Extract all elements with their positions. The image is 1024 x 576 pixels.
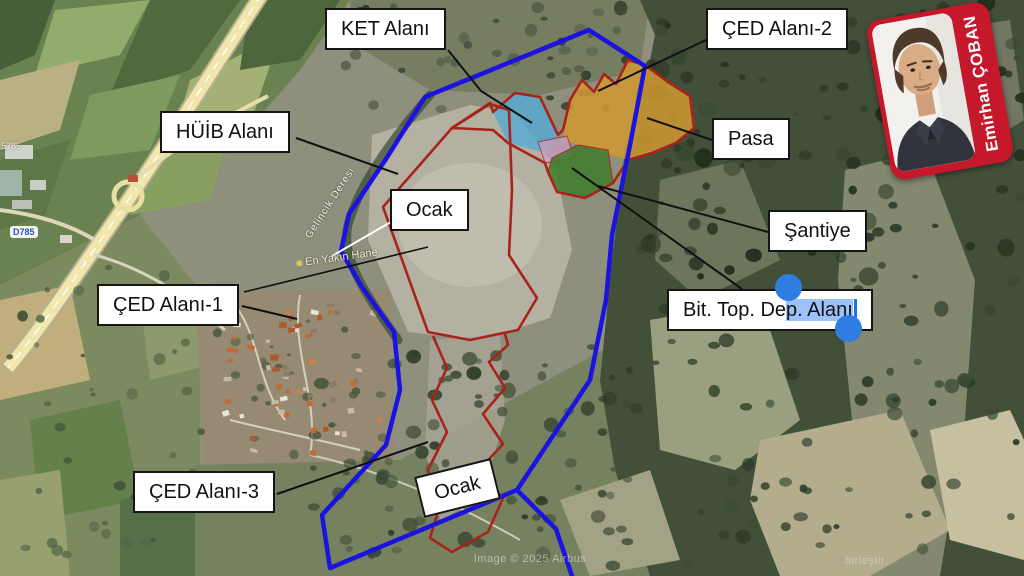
label-ced-alani-2[interactable]: ÇED Alanı-2	[706, 8, 848, 50]
label-ocak-upper[interactable]: Ocak	[390, 189, 469, 231]
road-shield-d785: D785	[10, 226, 38, 238]
road-label-5785: 5785	[1, 141, 21, 151]
label-ced-alani-1[interactable]: ÇED Alanı-1	[97, 284, 239, 326]
label-pasa[interactable]: Pasa	[712, 118, 790, 160]
label-huib-alani[interactable]: HÜİB Alanı	[160, 111, 290, 153]
satellite-map-canvas: Gelincik Deresi En Yakın Hane D785 5785 …	[0, 0, 1024, 576]
label-santiye[interactable]: Şantiye	[768, 210, 867, 252]
bit-top-text-plain: Bit. Top. De	[683, 299, 786, 321]
label-ket-alani[interactable]: KET Alanı	[325, 8, 446, 50]
nearest-house-marker-icon	[296, 260, 303, 267]
selection-handle-end[interactable]	[835, 315, 862, 342]
imagery-watermark: Image © 2025 Airbus	[430, 553, 630, 565]
selection-handle-start[interactable]	[775, 274, 802, 301]
label-ced-alani-3[interactable]: ÇED Alanı-3	[133, 471, 275, 513]
author-badge: Emirhan ÇOBAN	[878, 4, 1018, 182]
author-badge-card: Emirhan ÇOBAN	[865, 0, 1015, 181]
watermark-right: birleştir	[845, 555, 885, 567]
